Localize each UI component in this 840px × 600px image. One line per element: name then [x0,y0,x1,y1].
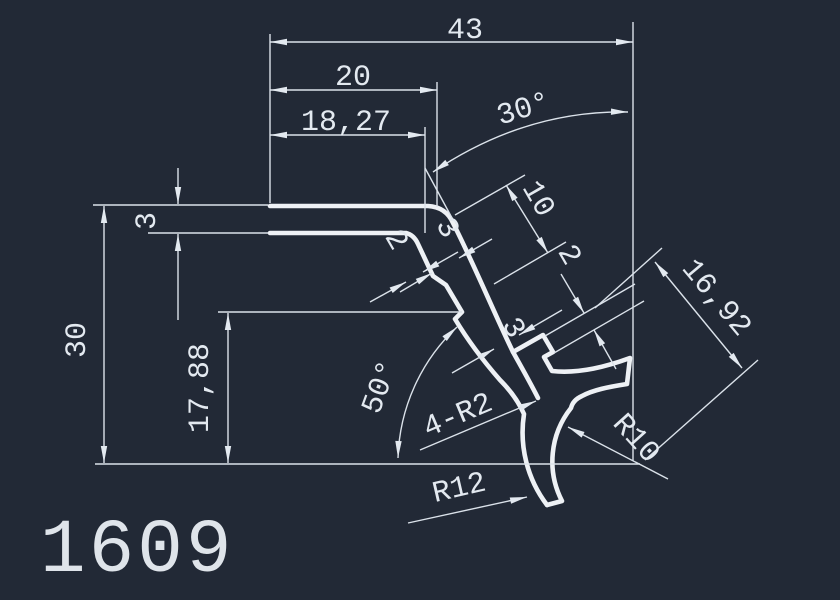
dim-arm-length-text: 10 [513,175,560,223]
dim-total-width-text: 43 [447,14,483,48]
dim-upper-width: 20 [270,61,437,95]
profile-arm-edge-lower [513,352,538,398]
dim-plate-thickness: 3 [131,168,178,320]
dim-lip-step-arrow-a [561,274,584,313]
dim-upper-width-text: 20 [335,61,371,95]
part-number-label: 1609 [40,508,234,594]
dim-inner-width-text: 18,27 [301,106,391,140]
dim-arm-angle-text: 30° [493,86,555,134]
dim-total-height-text: 30 [61,322,95,358]
dim-step-height-text: 17,88 [184,343,218,433]
dim-hook-outer-radius-text: R12 [429,467,489,512]
dim-inner-width: 18,27 [270,106,425,140]
dim-notch-step-text: 2 [376,224,414,257]
dim-wall-lower-arrow-a [452,349,494,373]
dim-lip-step-arrow-b [594,330,616,369]
dim-plate-thickness-text: 3 [131,212,165,230]
dim-fillet-note: 4-R2 [418,387,536,450]
cad-drawing-canvas: 43 20 18,27 30° 3 30 17,88 [0,0,840,600]
dim-hook-angle-text: 50° [356,356,406,418]
dim-total-height: 30 [61,206,104,463]
dim-fillet-note-text: 4-R2 [418,387,498,446]
dim-hook-inner-radius: R10 [568,408,668,479]
dim-arm-length: 10 [506,175,561,253]
ext-10-upper [455,175,525,215]
dim-diagonal-width: 16,92 [655,253,757,368]
dim-hook-inner-radius-text: R10 [604,408,665,471]
ext-lip-lower [554,301,644,353]
dim-step-height: 17,88 [184,313,228,463]
dim-lip-step-text: 2 [549,239,587,272]
dim-total-width: 43 [270,14,633,48]
dim-diagonal-width-text: 16,92 [673,253,757,344]
dim-hook-outer-radius: R12 [408,467,527,523]
ext-1692-upper [595,248,662,308]
dim-arm-angle: 30° [433,86,628,172]
ext-lip-upper [545,284,635,336]
